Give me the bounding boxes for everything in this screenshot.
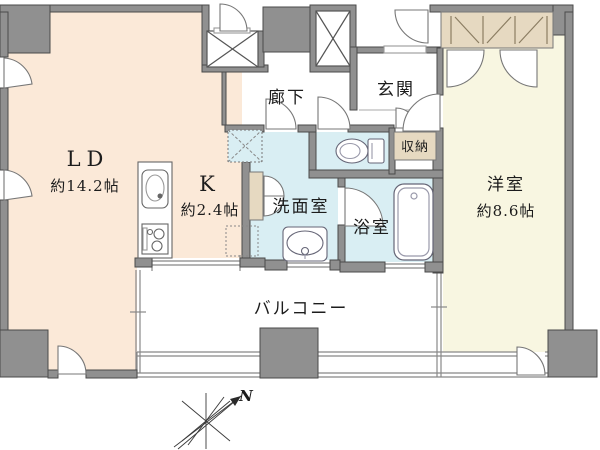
ld-label: LD [67,147,110,171]
washroom-label: 洗面室 [273,197,330,217]
western-room-closet [441,12,553,48]
bathroom-label: 浴室 [353,218,391,238]
washbasin-icon [283,227,327,261]
washing-machine-pan-icon [228,130,262,162]
kitchen-label: K [199,172,221,196]
ld-size: 約14.2帖 [50,177,119,195]
trunk-room-door [220,4,247,31]
stove-icon [142,224,168,254]
floorplan-canvas: LD 約14.2帖 K 約2.4帖 廊下 玄関 収納 洗面室 浴室 洋室 約8.… [0,0,600,450]
western-room-size: 約8.6帖 [477,202,536,220]
balcony-label: バルコニー [254,299,349,319]
floorplan-svg: LD 約14.2帖 K 約2.4帖 廊下 玄関 収納 洗面室 浴室 洋室 約8.… [0,0,600,450]
compass-icon [174,393,241,449]
toilet-icon [336,139,384,163]
toilet-door [318,97,350,129]
western-room-label: 洋室 [487,175,525,195]
entrance-label: 玄関 [377,80,415,100]
entrance-door [395,10,428,43]
closet-cross-icon [207,31,258,67]
hallway-label: 廊下 [268,88,306,108]
elevator-shaft-icon [316,11,350,66]
kitchen-size: 約2.4帖 [181,201,240,219]
north-label: N [238,387,254,405]
entrance-storage-label: 収納 [401,140,429,155]
bathtub-icon [394,184,433,260]
entrance-door-sill [384,46,426,53]
washroom-linen-cabinet [249,172,263,220]
